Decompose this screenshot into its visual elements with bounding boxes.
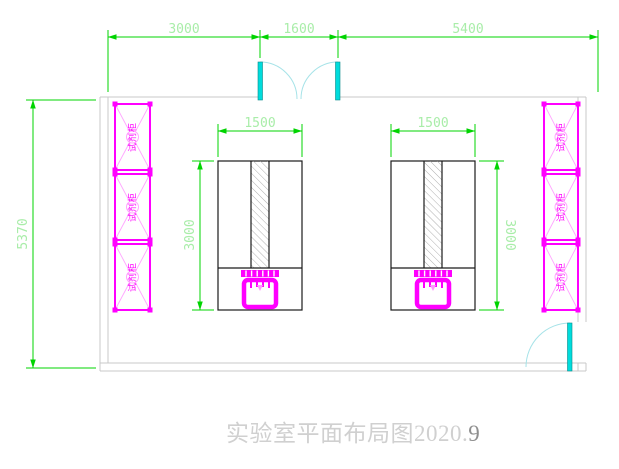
cad-viewport: 试剂柜 试剂柜 试剂柜 xyxy=(0,0,619,469)
dim-label-room-height: 5370 xyxy=(16,218,31,249)
cabinet-label: 试剂柜 xyxy=(555,122,567,152)
drawing-title: 实验室平面布局图2020.9 xyxy=(226,414,546,448)
cabinet-column-left: 试剂柜 试剂柜 试剂柜 xyxy=(113,102,153,313)
cabinet-label: 试剂柜 xyxy=(127,122,139,152)
dim-label-top-middle: 1600 xyxy=(283,22,314,37)
cabinet-label: 试剂柜 xyxy=(127,192,139,222)
double-door-top xyxy=(258,62,340,100)
sink-symbol-right xyxy=(414,270,452,307)
bench-trough-hatch xyxy=(251,161,269,268)
cabinet-left-3: 试剂柜 xyxy=(113,242,153,313)
cabinet-label: 试剂柜 xyxy=(127,262,139,292)
dim-label-bench2-width: 1500 xyxy=(417,116,448,131)
drawing-title-suffix: 9 xyxy=(468,421,480,446)
cabinet-left-2: 试剂柜 xyxy=(113,172,153,243)
dim-label-bench1-depth: 3000 xyxy=(183,219,198,250)
cabinet-left-1: 试剂柜 xyxy=(113,102,153,173)
bench-trough-hatch xyxy=(424,161,442,268)
door-leaf-right xyxy=(336,62,341,100)
dim-label-top-right: 5400 xyxy=(452,22,483,37)
dim-label-bench1-width: 1500 xyxy=(244,116,275,131)
cabinet-right-1: 试剂柜 xyxy=(542,102,581,173)
cabinet-right-3: 试剂柜 xyxy=(542,242,581,313)
dim-label-top-left: 3000 xyxy=(168,22,199,37)
door-swing-arc-left xyxy=(260,62,297,99)
single-door-right xyxy=(526,323,572,371)
dim-label-bench2-depth: 3000 xyxy=(502,219,517,250)
floor-plan-drawing: 试剂柜 试剂柜 试剂柜 xyxy=(0,0,619,469)
door-swing-arc-right xyxy=(301,62,338,99)
door-swing-arc xyxy=(526,323,570,367)
cabinet-label: 试剂柜 xyxy=(555,192,567,222)
cabinet-right-2: 试剂柜 xyxy=(542,172,581,243)
sink-symbol-left xyxy=(241,270,279,307)
door-leaf xyxy=(568,323,573,371)
dimensions xyxy=(26,30,598,368)
cabinet-column-right: 试剂柜 试剂柜 试剂柜 xyxy=(542,102,581,313)
door-leaf-left xyxy=(258,62,263,100)
cabinet-label: 试剂柜 xyxy=(555,262,567,292)
drawing-title-main: 实验室平面布局图2020. xyxy=(226,421,468,446)
